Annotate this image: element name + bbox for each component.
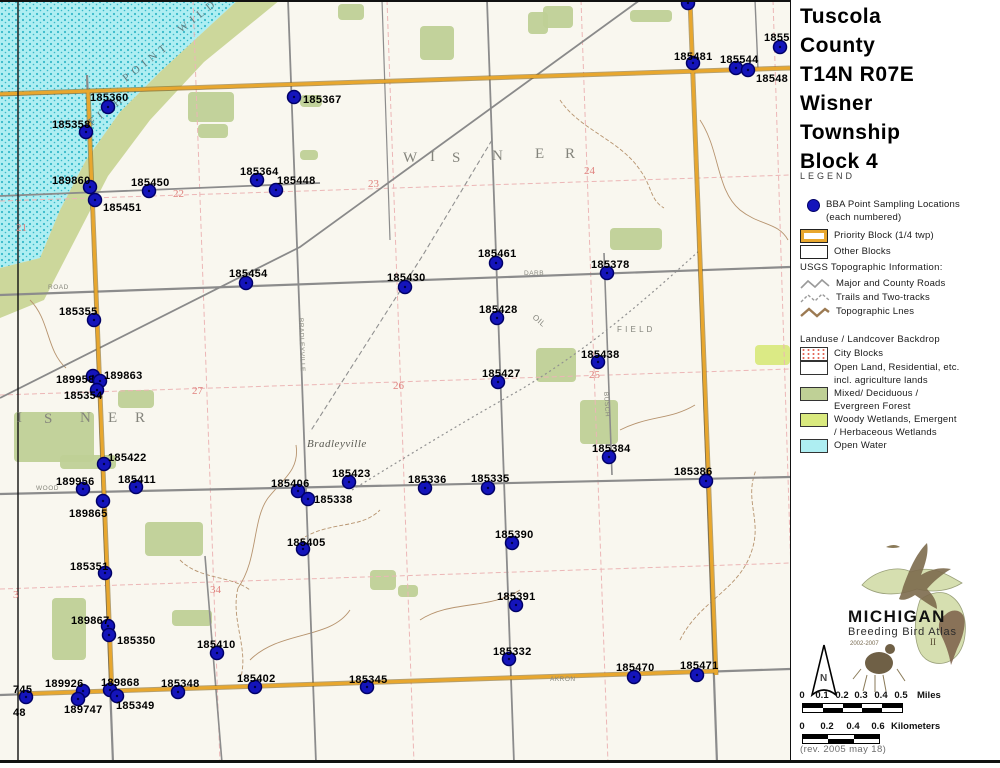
bba-point-label: 48 xyxy=(13,707,26,719)
legend-label: BBA Point Sampling Locations(each number… xyxy=(826,198,960,224)
title-line: County xyxy=(800,31,914,60)
map-place-label: R xyxy=(565,146,576,162)
bba-point-label: 189747 xyxy=(64,704,103,716)
side-panel: Tuscola County T14N R07E Wisner Township… xyxy=(791,0,1000,762)
map-place-label: ROAD xyxy=(48,284,69,291)
section-number: 25 xyxy=(589,369,601,381)
svg-text:N: N xyxy=(820,673,827,684)
other-blocks-swatch-icon xyxy=(800,245,828,259)
bba-point-label: 1855 xyxy=(764,32,790,44)
bba-point-label: 185378 xyxy=(591,259,630,271)
title-line: Township xyxy=(800,118,914,147)
title-line: T14N R07E xyxy=(800,60,914,89)
legend-item-city-blocks: City Blocks xyxy=(800,347,883,361)
bba-point-label: 185360 xyxy=(90,92,129,104)
svg-text:Breeding Bird Atlas: Breeding Bird Atlas xyxy=(848,626,957,638)
legend-label: Open Water xyxy=(834,439,887,452)
bba-point-label: 185405 xyxy=(287,537,326,549)
bba-point-label: 185350 xyxy=(117,635,156,647)
bba-point-label: 185384 xyxy=(592,443,631,455)
legend-label: City Blocks xyxy=(834,347,883,360)
map-place-label: DARB xyxy=(524,270,544,277)
section-number: 21 xyxy=(16,222,27,234)
bba-point-label: 189865 xyxy=(69,508,108,520)
legend-label: Topographic Lnes xyxy=(836,305,914,318)
map-place-label: R xyxy=(135,410,146,426)
usgs-heading: USGS Topographic Information: xyxy=(800,262,943,273)
scale-unit-label: Kilometers xyxy=(891,721,940,732)
section-number: 34 xyxy=(210,584,222,596)
landuse-heading: Landuse / Landcover Backdrop xyxy=(800,334,940,345)
bba-point-label: 185411 xyxy=(118,474,156,486)
legend-heading: LEGEND xyxy=(800,171,855,181)
legend-label: Other Blocks xyxy=(834,245,891,258)
bba-point-swatch-icon xyxy=(807,199,820,212)
bba-point-label: 185354 xyxy=(64,390,103,402)
revision-note: (rev. 2005 may 18) xyxy=(800,744,886,755)
bba-point-label: 185450 xyxy=(131,177,170,189)
bba-point-label: 189868 xyxy=(101,677,140,689)
page-title: Tuscola County T14N R07E Wisner Township… xyxy=(800,2,914,176)
map-place-label: F I E L D xyxy=(617,325,653,334)
topo-line-icon xyxy=(800,306,830,322)
section-number: 27 xyxy=(192,385,204,397)
scale-tick-label: 0.3 xyxy=(854,690,867,701)
bba-point-label: 185438 xyxy=(581,349,620,361)
woody-wetlands-swatch-icon xyxy=(800,413,828,427)
svg-text:2002-2007: 2002-2007 xyxy=(850,641,879,647)
miles-scale-bar xyxy=(802,703,903,713)
bba-point-label: 185351 xyxy=(70,561,109,573)
bba-point-label: 185355 xyxy=(59,306,98,318)
map-place-label: Bradleyville xyxy=(307,438,367,450)
map-place-label: E xyxy=(108,410,118,426)
map-top-border xyxy=(0,0,790,2)
legend-item-woody-wetlands: Woody Wetlands, Emergent/ Herbaceous Wet… xyxy=(800,413,957,439)
legend-label: Major and County Roads xyxy=(836,277,946,290)
bba-point-label: 189958 xyxy=(56,374,95,386)
map-place-label: N xyxy=(80,410,91,426)
bba-point-label: 185348 xyxy=(161,678,200,690)
bba-point-label: 185451 xyxy=(103,202,142,214)
legend-label: Priority Block (1/4 twp) xyxy=(834,229,934,242)
title-line: Tuscola xyxy=(800,2,914,31)
scale-tick-label: 0 xyxy=(799,721,804,732)
section-number: 24 xyxy=(584,165,596,177)
bba-point-label: 185386 xyxy=(674,466,713,478)
legend-label: Open Land, Residential, etc.incl. agricu… xyxy=(834,361,959,387)
legend-item-topo-lines: Topographic Lnes xyxy=(800,305,914,322)
bba-point-label: 185448 xyxy=(277,175,316,187)
section-number: 23 xyxy=(368,178,380,190)
section-number: 3 xyxy=(13,589,19,601)
bba-point-label: 185481 xyxy=(674,51,713,63)
map-place-label: W xyxy=(403,150,418,166)
miles-scale-labels: 00.10.20.30.40.5Miles xyxy=(791,690,1000,702)
bba-point-label: 185338 xyxy=(314,494,353,506)
legend-item-other-blocks: Other Blocks xyxy=(800,245,891,259)
page: WISNERISNERBradleyvilleF I E L DOILWOODR… xyxy=(0,0,1000,768)
bba-point-label: 185364 xyxy=(240,166,279,178)
scale-tick-label: 0.4 xyxy=(846,721,859,732)
legend-item-open-water: Open Water xyxy=(800,439,887,453)
bba-point-label: 185410 xyxy=(197,639,236,651)
map-canvas: WISNERISNERBradleyvilleF I E L DOILWOODR… xyxy=(0,0,790,763)
bba-point-label: 185335 xyxy=(471,473,510,485)
open-land-swatch-icon xyxy=(800,361,828,375)
bba-point-label: 185391 xyxy=(497,591,536,603)
bba-point-label: 189926 xyxy=(45,678,84,690)
bba-point-label: 185470 xyxy=(616,662,655,674)
legend-label: Mixed/ Deciduous /Evergreen Forest xyxy=(834,387,918,413)
map-place-label: I xyxy=(430,149,436,165)
scale-unit-label: Miles xyxy=(917,690,941,701)
bba-point-label: 185422 xyxy=(108,452,147,464)
bba-point-label: 189860 xyxy=(52,175,91,187)
scale-tick-label: 0.5 xyxy=(894,690,907,701)
map-place-label: I xyxy=(17,410,23,426)
scale-tick-label: 0.1 xyxy=(815,690,828,701)
bba-point-label: 185345 xyxy=(349,674,388,686)
map-place-label: S xyxy=(44,411,53,427)
bba-point-label: 185406 xyxy=(271,478,310,490)
bba-point-label: 185367 xyxy=(303,94,342,106)
bba-point-label: 185471 xyxy=(680,660,719,672)
topo-map: WISNERISNERBradleyvilleF I E L DOILWOODR… xyxy=(0,0,790,763)
map-place-label: OIL xyxy=(531,313,548,329)
map-place-label: BRADLEYVILLE xyxy=(297,318,306,372)
bba-point-label: 18548 xyxy=(756,73,788,85)
scale-tick-label: 0.2 xyxy=(820,721,833,732)
open-water-swatch-icon xyxy=(800,439,828,453)
map-place-label: AKRON xyxy=(550,676,576,683)
bba-point-label: 745 xyxy=(13,684,32,696)
mixed-forest-swatch-icon xyxy=(800,387,828,401)
bba-point-label: 185358 xyxy=(52,119,91,131)
bba-point-label: 185423 xyxy=(332,468,371,480)
section-number: 22 xyxy=(173,188,184,200)
scale-tick-label: 0 xyxy=(799,690,804,701)
svg-text:II: II xyxy=(930,637,936,647)
page-bottom-border xyxy=(0,760,1000,763)
bba-point-label: 189956 xyxy=(56,476,95,488)
legend-item-mixed-forest: Mixed/ Deciduous /Evergreen Forest xyxy=(800,387,918,413)
bba-point-label: 185461 xyxy=(478,248,517,260)
km-scale-bar xyxy=(802,734,880,744)
bba-point-label: 185454 xyxy=(229,268,268,280)
bba-point-label: 185402 xyxy=(237,673,276,685)
section-number: 26 xyxy=(393,380,405,392)
map-place-label: N xyxy=(492,148,503,164)
bba-point-label: 185544 xyxy=(720,54,759,66)
legend-item-open-land: Open Land, Residential, etc.incl. agricu… xyxy=(800,361,959,387)
bba-point-label: 185430 xyxy=(387,272,426,284)
bba-point-label: 185332 xyxy=(493,646,532,658)
priority-block-swatch-icon xyxy=(800,229,828,243)
bba-point-label: 185336 xyxy=(408,474,447,486)
bba-point-label: 185390 xyxy=(495,529,534,541)
legend-label: Woody Wetlands, Emergent/ Herbaceous Wet… xyxy=(834,413,957,439)
legend-item-priority-block: Priority Block (1/4 twp) xyxy=(800,229,934,243)
map-place-label: S xyxy=(452,150,461,166)
svg-text:MICHIGAN: MICHIGAN xyxy=(848,607,946,626)
map-place-label: E xyxy=(535,146,545,162)
legend-item-bba-points: BBA Point Sampling Locations(each number… xyxy=(800,198,960,224)
title-line: Wisner xyxy=(800,89,914,118)
scale-tick-label: 0.6 xyxy=(871,721,884,732)
bba-point-label: 185428 xyxy=(479,304,518,316)
bba-point-label: 185349 xyxy=(116,700,155,712)
scale-tick-label: 0.2 xyxy=(835,690,848,701)
bba-point-label: 189863 xyxy=(104,370,143,382)
city-blocks-swatch-icon xyxy=(800,347,828,361)
km-scale-labels: 00.20.40.6Kilometers xyxy=(791,721,1000,733)
bba-point-label: 185427 xyxy=(482,368,521,380)
bba-point-label: 189867 xyxy=(71,615,110,627)
legend-label: Trails and Two-tracks xyxy=(836,291,930,304)
scale-tick-label: 0.4 xyxy=(874,690,887,701)
